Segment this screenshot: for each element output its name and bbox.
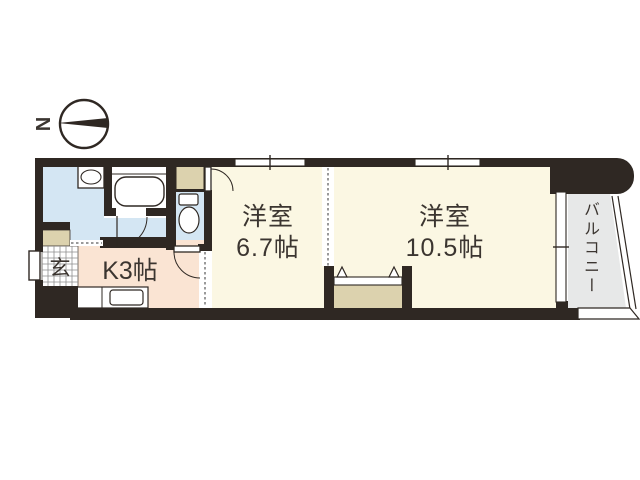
entrance-door-leaf: [29, 251, 40, 280]
washbasin-icon: [78, 165, 104, 188]
upper-closet-floor: [176, 166, 204, 190]
kitchen-label: K3帖: [70, 251, 190, 287]
compass-icon: [58, 100, 108, 148]
western-room-large-area: 10.5帖: [334, 233, 556, 264]
toilet-icon: [179, 194, 199, 233]
shoe-cabinet: [42, 230, 70, 246]
floorplan-canvas: N 玄 K3帖 洋室 6.7帖 洋室 10.5帖 バルコニー: [0, 0, 640, 480]
kitchen-sink-icon: [72, 287, 148, 308]
western-room-large-name: 洋室: [334, 202, 556, 233]
western-room-small-area: 6.7帖: [212, 233, 324, 264]
western-room-small-name: 洋室: [212, 202, 324, 233]
balcony-label: バルコニー: [578, 201, 600, 306]
western-room-small-label: 洋室 6.7帖: [212, 202, 324, 264]
compass-north-label: N: [30, 110, 58, 138]
western-room-large-label: 洋室 10.5帖: [334, 202, 556, 264]
closet-door-leaf: [205, 167, 211, 191]
